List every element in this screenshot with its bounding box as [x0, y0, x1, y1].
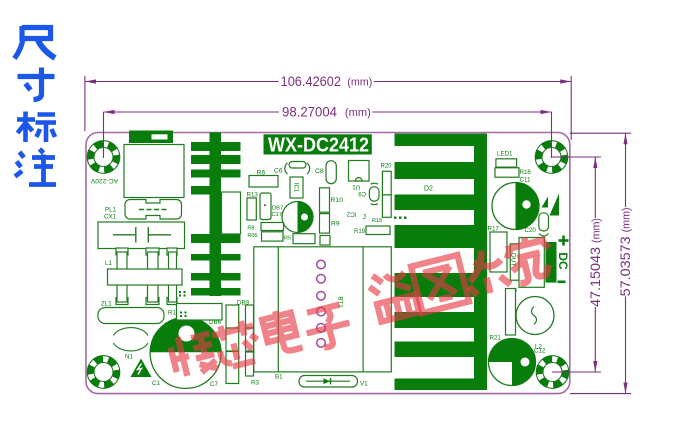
svg-text:R8: R8 [247, 226, 254, 232]
svg-text:PL1: PL1 [105, 207, 117, 214]
svg-text:C6: C6 [274, 168, 283, 175]
svg-text:C11: C11 [520, 177, 531, 184]
svg-text:LED1: LED1 [497, 151, 513, 158]
svg-text:WX-DC2412: WX-DC2412 [268, 134, 369, 156]
svg-text:V1: V1 [360, 381, 368, 388]
svg-text:R5: R5 [284, 236, 291, 242]
svg-text:DB7: DB7 [272, 206, 283, 212]
svg-text:U1: U1 [352, 183, 360, 190]
svg-text:L1: L1 [105, 260, 112, 267]
svg-text:(mm): (mm) [590, 218, 602, 243]
svg-text:DC: DC [556, 252, 570, 270]
svg-text:R10: R10 [331, 197, 344, 204]
svg-text:R18: R18 [372, 218, 382, 224]
svg-text:J: J [363, 214, 367, 221]
svg-text:R3: R3 [251, 380, 259, 387]
svg-text:(mm): (mm) [621, 207, 633, 232]
svg-text:IC1: IC1 [293, 183, 299, 193]
svg-text:R20: R20 [381, 164, 393, 170]
svg-text:ZL1: ZL1 [101, 301, 112, 308]
svg-text:(mm): (mm) [345, 107, 371, 119]
svg-text:B1: B1 [275, 374, 283, 381]
svg-text:CX1: CX1 [104, 214, 117, 221]
svg-text:C20: C20 [525, 227, 537, 234]
svg-text:IC2: IC2 [346, 210, 356, 217]
svg-text:C1: C1 [152, 380, 160, 387]
svg-text:R16: R16 [520, 169, 532, 176]
svg-text:C8: C8 [315, 168, 324, 175]
svg-text:47.15043: 47.15043 [587, 247, 603, 307]
svg-text:R1: R1 [168, 310, 176, 317]
svg-text:R21: R21 [490, 335, 502, 342]
svg-text:AC-220V: AC-220V [90, 177, 118, 184]
svg-text:R19: R19 [354, 229, 366, 235]
svg-text:R9: R9 [331, 221, 340, 228]
svg-text:N1: N1 [125, 354, 133, 361]
svg-text:C7: C7 [210, 381, 218, 388]
svg-text:(mm): (mm) [347, 77, 372, 89]
svg-text:C17: C17 [272, 212, 283, 218]
svg-text:106.42602: 106.42602 [281, 73, 342, 89]
svg-text:C9: C9 [358, 190, 366, 197]
svg-text:R06: R06 [247, 233, 257, 239]
svg-text:98.27004: 98.27004 [282, 104, 337, 120]
svg-text:C12: C12 [534, 348, 546, 355]
svg-text:D2: D2 [424, 186, 433, 193]
svg-text:DB6: DB6 [209, 319, 222, 326]
svg-text:57.03573: 57.03573 [617, 236, 633, 296]
